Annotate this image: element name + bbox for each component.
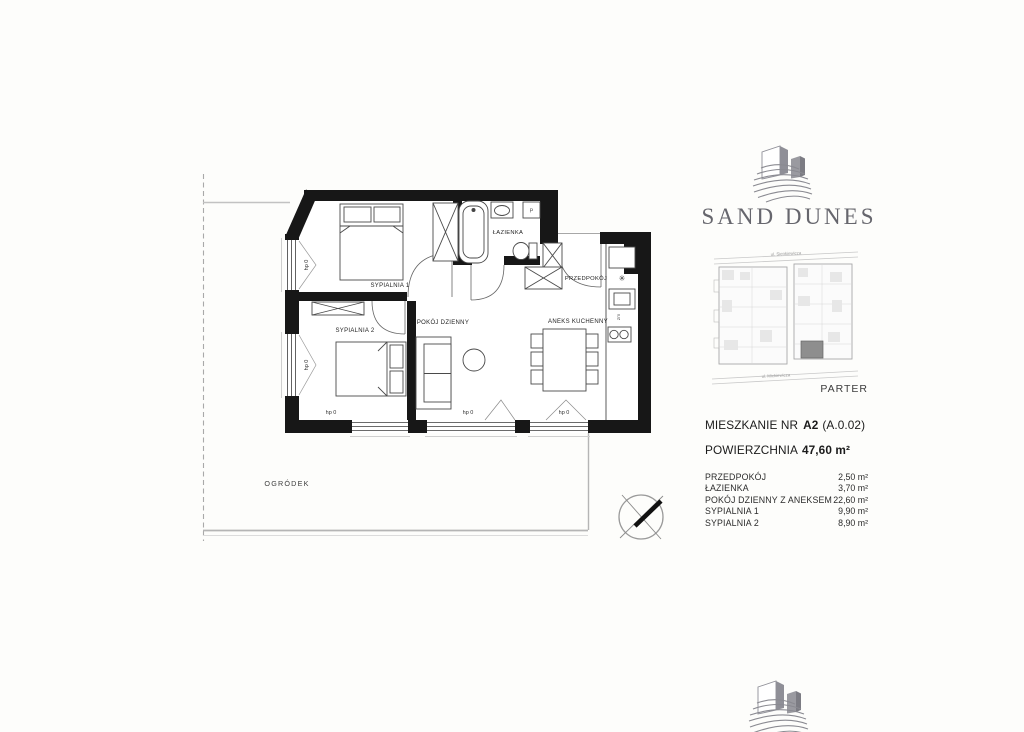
window-label-south1: hp 0	[326, 410, 337, 416]
room-area: 9,90 m²	[838, 506, 868, 517]
apartment-area-label: POWIERZCHNIA	[705, 443, 798, 457]
room-name: SYPIALNIA 1	[705, 506, 759, 517]
site-building-left	[714, 267, 787, 364]
site-building-right	[794, 264, 852, 359]
apartment-title-label: MIESZKANIE NR	[705, 418, 798, 432]
site-highlighted-unit	[801, 341, 823, 358]
room-area: 2,50 m²	[838, 472, 868, 483]
brand-logo-icon-bottom	[749, 681, 808, 732]
room-label-przedpokoj: PRZEDPOKÓJ	[565, 275, 607, 282]
room-label-aneks-kuchenny: ANEKS KUCHENNY	[548, 319, 608, 325]
toilet	[513, 243, 537, 260]
fridge	[609, 247, 635, 268]
window-label-west1: hp 0	[304, 260, 310, 271]
rooms-table: PRZEDPOKÓJ 2,50 m² ŁAZIENKA 3,70 m² POKÓ…	[705, 472, 868, 529]
street-bottom-label: ul. Mickiewicza	[761, 372, 790, 379]
fridge-symbol: ✳	[619, 274, 626, 283]
bed-bedroom2	[336, 342, 406, 396]
wall-bedroom1-south	[299, 292, 407, 301]
dishwasher-label: zm	[616, 314, 621, 320]
room-name: ŁAZIENKA	[705, 483, 749, 494]
page-graphics: OGRÓDEK hp 0 hp 0	[0, 0, 1024, 732]
apartment-area-line: POWIERZCHNIA47,60 m²	[705, 443, 865, 457]
room-name: PRZEDPOKÓJ	[705, 472, 766, 483]
room-label-sypialnia1: SYPIALNIA 1	[371, 283, 410, 289]
washer-label: P	[530, 209, 534, 215]
room-area: 3,70 m²	[838, 483, 868, 494]
room-label-lazienka: ŁAZIENKA	[493, 230, 523, 236]
apartment-unit-code: (A.0.02)	[822, 418, 865, 432]
site-plan: ul. Sienkiewicza ul. Mickiewicza PARTER	[712, 250, 868, 395]
wall-bath-east	[540, 190, 558, 244]
street-top-label: ul. Sienkiewicza	[771, 250, 802, 257]
compass-icon	[619, 495, 663, 539]
apartment-unit: A2	[803, 418, 818, 432]
bed-bedroom1	[340, 204, 403, 280]
table-row: PRZEDPOKÓJ 2,50 m²	[705, 472, 868, 483]
room-label-pokoj-dzienny: POKÓJ DZIENNY	[417, 319, 469, 326]
wardrobe-bedroom2	[312, 302, 364, 315]
apartment-area-value: 47,60 m²	[802, 443, 850, 457]
table-row: ŁAZIENKA 3,70 m²	[705, 483, 868, 494]
washbasin	[491, 202, 513, 218]
window-label-south2: hp 0	[463, 410, 474, 416]
brand-logo-text: SAND DUNES	[701, 204, 876, 229]
apartment-title-line: MIESZKANIE NRA2(A.0.02)	[705, 418, 865, 432]
room-label-sypialnia2: SYPIALNIA 2	[336, 328, 375, 334]
wardrobe-hall-1	[543, 243, 562, 268]
coffee-table	[463, 349, 485, 371]
apartment-info: MIESZKANIE NRA2(A.0.02) POWIERZCHNIA47,6…	[705, 418, 865, 457]
window-label-west2: hp 0	[304, 360, 310, 371]
wall-bedroom2-east	[407, 301, 416, 420]
table-row: POKÓJ DZIENNY Z ANEKSEM 22,60 m²	[705, 495, 868, 506]
wardrobe-hall-2	[525, 267, 562, 289]
floor-level-label: PARTER	[820, 383, 868, 395]
room-name: SYPIALNIA 2	[705, 518, 759, 529]
wall-north	[304, 190, 558, 201]
bathtub	[459, 201, 488, 263]
table-row: SYPIALNIA 1 9,90 m²	[705, 506, 868, 517]
room-area: 22,60 m²	[833, 495, 868, 506]
wardrobe-bedroom1	[433, 203, 458, 261]
brand-logo-icon	[753, 146, 812, 202]
room-area: 8,90 m²	[838, 518, 868, 529]
garden-label: OGRÓDEK	[264, 479, 309, 488]
wall-east	[638, 232, 651, 433]
dining-table	[531, 329, 598, 391]
table-row: SYPIALNIA 2 8,90 m²	[705, 518, 868, 529]
brochure-page: OGRÓDEK hp 0 hp 0	[0, 0, 1024, 732]
room-name: POKÓJ DZIENNY Z ANEKSEM	[705, 495, 832, 506]
sofa	[416, 337, 451, 409]
window-label-south3: hp 0	[559, 410, 570, 416]
